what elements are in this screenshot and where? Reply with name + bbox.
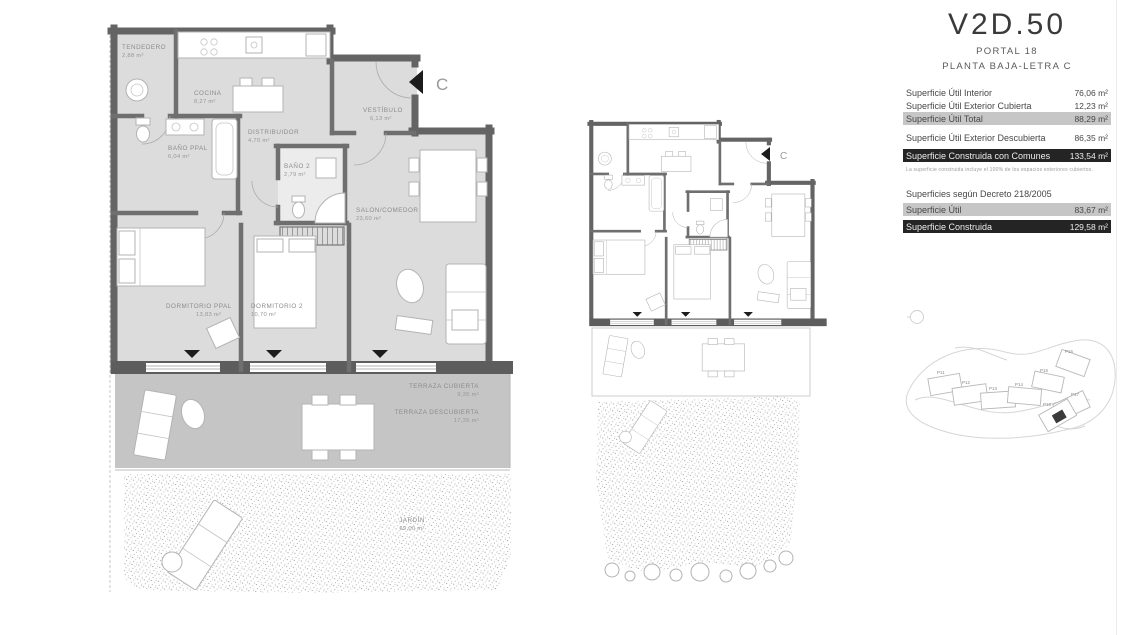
room-label-banoppal: BAÑO PPAL: [168, 143, 208, 152]
windows: [146, 363, 436, 372]
room-area-cocina: 8,27 m²: [194, 99, 216, 105]
room-label-dorm2: DORMITORIO 2: [251, 303, 303, 310]
floor-plans-canvas: TENDEDERO 2,88 m² COCINA 8,27 m² BAÑO PP…: [0, 0, 900, 635]
room-label-jardin: JARDÍN: [399, 515, 425, 524]
room-area-banoppal: 6,04 m²: [168, 154, 190, 160]
row-label: Superficie Útil Exterior Descubierta: [906, 133, 1046, 143]
room-label-salon: SALON/COMEDOR: [356, 207, 418, 214]
room-area-distribuidor: 4,70 m²: [248, 138, 270, 144]
decree-title: Superficies según Decreto 218/2005: [903, 189, 1111, 199]
row-label: Superficie Útil Exterior Cubierta: [906, 101, 1032, 111]
page-edge-divider: [1116, 0, 1117, 635]
floorplan-sheet: TENDEDERO 2,88 m² COCINA 8,27 m² BAÑO PP…: [0, 0, 1130, 635]
siteplan-building-label: P18: [1043, 402, 1052, 407]
room-area-terraza-cubierta: 9,35 m²: [457, 392, 479, 398]
table-row-util: Superficie Útil 83,67 m²: [903, 203, 1111, 216]
room-label-terraza-cubierta: TERRAZA CUBIERTA: [409, 383, 479, 390]
table-row-total: Superficie Útil Total 88,29 m²: [903, 112, 1111, 125]
room-label-terraza-descubierta: TERRAZA DESCUBIERTA: [395, 409, 480, 416]
table-row-construida: Superficie Construida 129,58 m²: [903, 220, 1111, 233]
section-letter: C: [436, 75, 449, 94]
room-area-vestibulo: 6,13 m²: [370, 116, 392, 122]
keyplan-garden-hatch: [596, 396, 800, 574]
room-area-tendedero: 2,88 m²: [122, 53, 144, 59]
room-area-terraza-descubierta: 17,35 m²: [454, 418, 479, 424]
section-letter: C: [780, 151, 787, 162]
row-value: 133,54 m²: [1070, 151, 1108, 161]
siteplan-building-label: P15: [1040, 368, 1049, 373]
row-value: 83,67 m²: [1074, 205, 1108, 215]
table-row: Superficie Útil Interior 76,06 m²: [903, 86, 1111, 99]
row-label: Superficie Útil: [906, 205, 962, 215]
siteplan-building-label: P14: [1015, 382, 1024, 387]
room-area-dormppal: 13,83 m²: [196, 312, 221, 318]
siteplan-building-label: P16: [1065, 349, 1074, 354]
site-plan: P11 P12 P13 P14 P15 P16 P17 P18: [895, 300, 1123, 450]
decree-table: Superficie Útil 83,67 m² Superficie Cons…: [903, 203, 1111, 233]
surface-note: La superficie construida incluye el 100%…: [903, 167, 1111, 173]
room-label-bano2: BAÑO 2: [284, 161, 310, 170]
site-buildings: [928, 349, 1090, 431]
info-panel: V2D.50 PORTAL 18 PLANTA BAJA-LETRA C Sup…: [903, 8, 1111, 233]
row-value: 12,23 m²: [1074, 101, 1108, 111]
section-marker-c-key: C: [761, 147, 787, 162]
entry-arrow-icon: [761, 147, 770, 161]
room-label-vestibulo: VESTÍBULO: [363, 105, 403, 114]
north-indicator-icon: [907, 311, 924, 324]
table-row-constructed: Superficie Construida con Comunes 133,54…: [903, 149, 1111, 162]
row-value: 129,58 m²: [1070, 222, 1108, 232]
siteplan-building-label: P11: [937, 370, 945, 375]
siteplan-building-label: P17: [1071, 392, 1080, 397]
room-area-bano2: 2,79 m²: [284, 172, 306, 178]
table-row: Superficie Útil Exterior Descubierta 86,…: [903, 131, 1111, 144]
floor-subtitle: PLANTA BAJA-LETRA C: [903, 61, 1111, 72]
row-label: Superficie Útil Total: [906, 114, 983, 124]
row-label: Superficie Construida con Comunes: [906, 151, 1050, 161]
room-area-salon: 23,60 m²: [356, 216, 381, 222]
row-value: 86,35 m²: [1074, 133, 1108, 143]
room-label-distribuidor: DISTRIBUIDOR: [248, 129, 299, 136]
row-label: Superficie Útil Interior: [906, 88, 992, 98]
room-label-cocina: COCINA: [194, 90, 222, 97]
siteplan-building-label: P13: [989, 386, 998, 391]
row-value: 88,29 m²: [1074, 114, 1108, 124]
portal-subtitle: PORTAL 18: [903, 46, 1111, 57]
row-value: 76,06 m²: [1074, 88, 1108, 98]
unit-title: V2D.50: [903, 8, 1111, 42]
room-area-dorm2: 10,70 m²: [251, 312, 276, 318]
keyplan-floors: [592, 328, 810, 582]
room-area-jardin: 69,00 m²: [399, 526, 424, 532]
siteplan-building-label: P12: [962, 380, 971, 385]
room-label-tendedero: TENDEDERO: [122, 44, 166, 51]
row-label: Superficie Construida: [906, 222, 992, 232]
surface-table: Superficie Útil Interior 76,06 m² Superf…: [903, 86, 1111, 173]
table-row: Superficie Útil Exterior Cubierta 12,23 …: [903, 99, 1111, 112]
room-label-dormppal: DORMITORIO PPAL: [166, 303, 232, 310]
